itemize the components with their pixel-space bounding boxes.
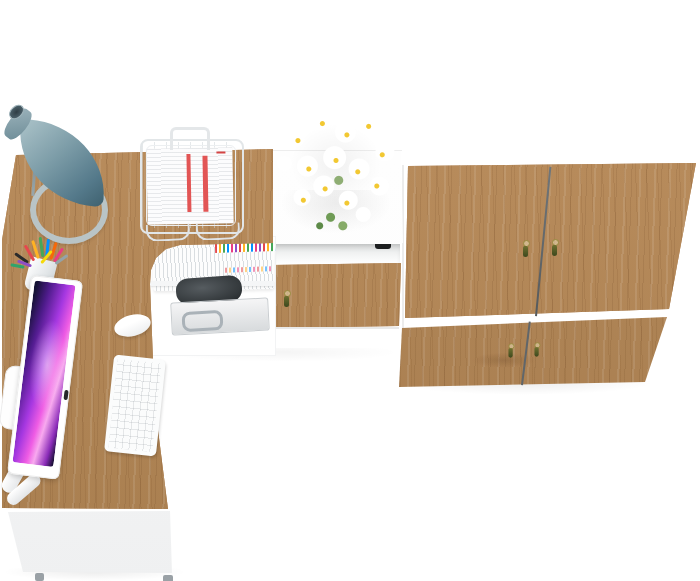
tray-leg-right: [196, 222, 241, 241]
cabinet-door-handle: [283, 290, 291, 307]
keyboard: [104, 355, 166, 457]
furniture-scene: [0, 0, 700, 581]
tray-handle: [170, 127, 210, 150]
cabinet-handle-notch: [375, 244, 391, 249]
cabinet-base-shadow: [274, 327, 399, 329]
wardrobe-right-drawer-handle: [534, 342, 541, 356]
tray-leg-left: [146, 223, 191, 242]
desk-foot-right: [163, 575, 173, 581]
tray-frame-inner: [146, 145, 236, 226]
monitor-screen: [13, 280, 76, 467]
keyboard-keys: [108, 359, 161, 452]
wardrobe-left-door-handle: [522, 240, 530, 257]
wardrobe-left-drawer-handle: [508, 343, 515, 357]
monitor-port-slot: [63, 390, 68, 400]
wardrobe-right-door-handle: [551, 239, 559, 256]
flower-bouquet: [268, 98, 404, 240]
case-handle: [182, 310, 224, 332]
desk-foot-left: [35, 573, 44, 581]
